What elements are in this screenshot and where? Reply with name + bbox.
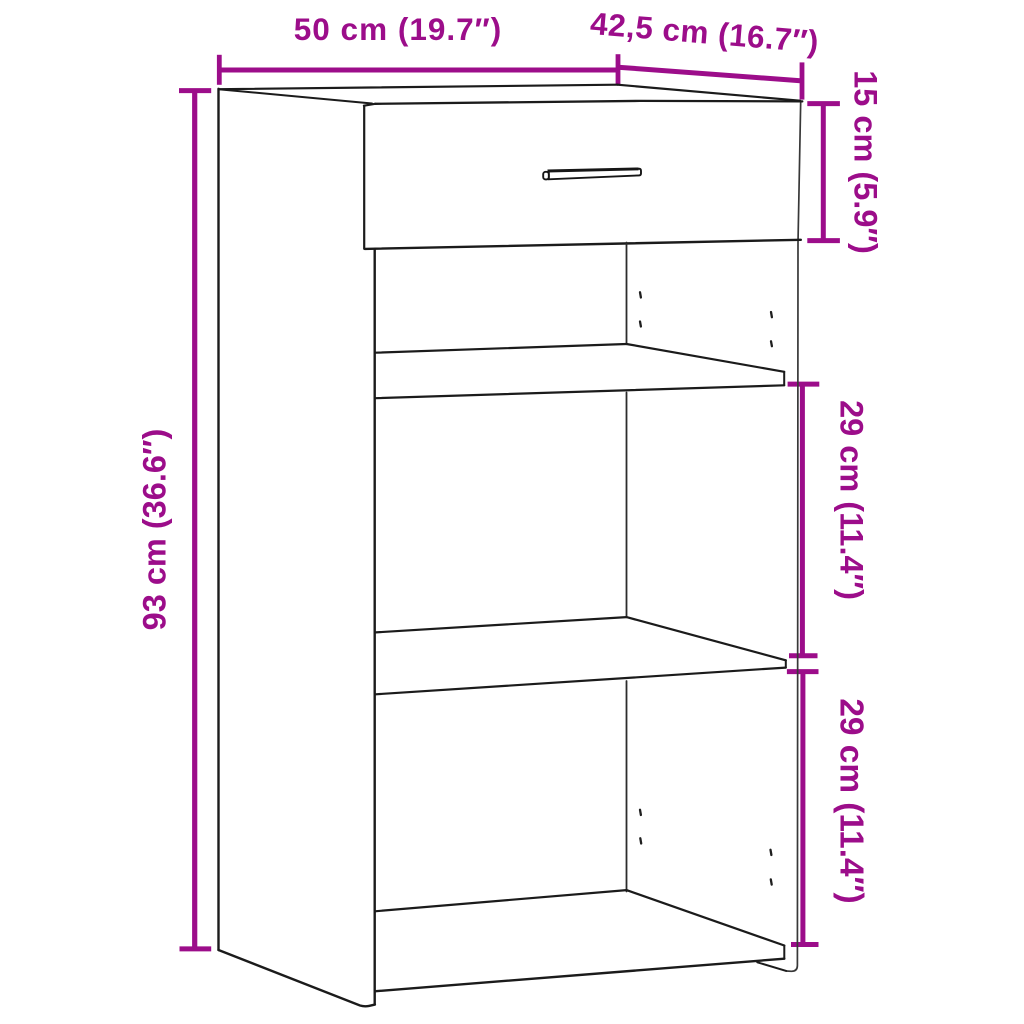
svg-text:15 cm (5.9″): 15 cm (5.9″) — [848, 70, 884, 254]
svg-text:29 cm (11.4″): 29 cm (11.4″) — [833, 698, 870, 903]
svg-text:29 cm (11.4″): 29 cm (11.4″) — [834, 400, 870, 600]
svg-text:93 cm (36.6″): 93 cm (36.6″) — [137, 429, 173, 631]
svg-text:50 cm (19.7″): 50 cm (19.7″) — [294, 11, 502, 47]
